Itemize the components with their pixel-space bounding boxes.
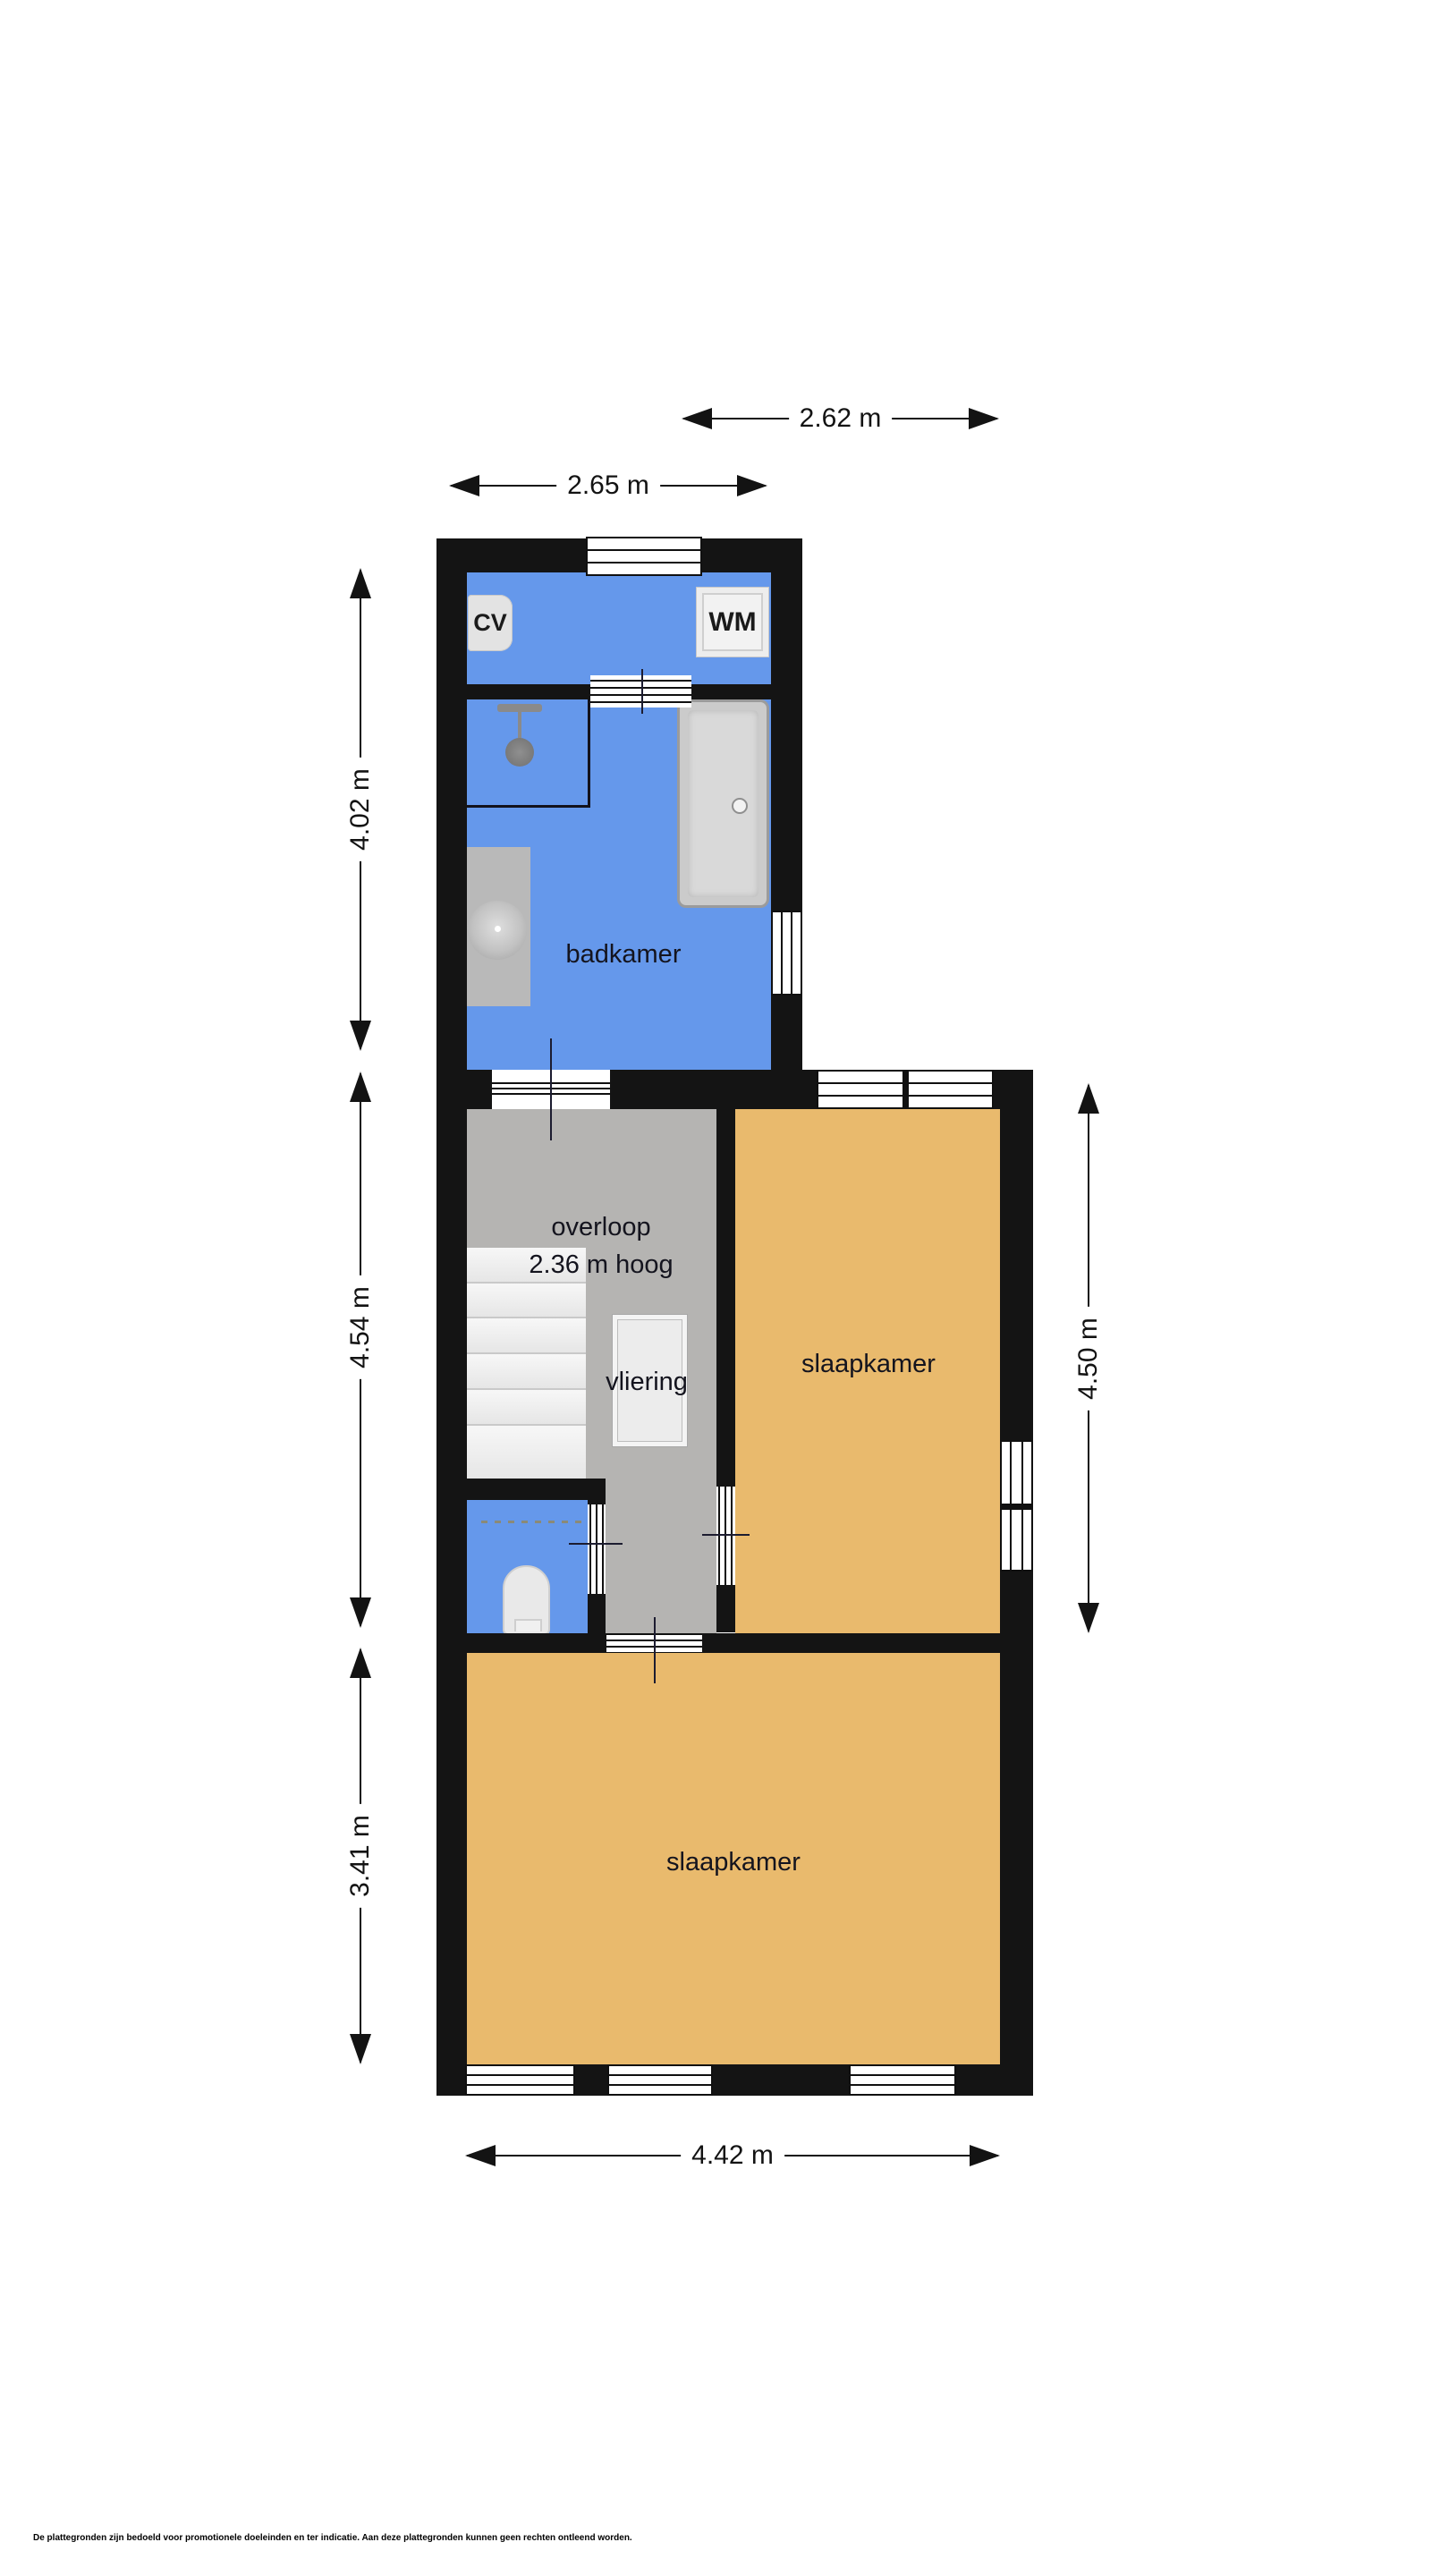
door	[716, 1487, 735, 1585]
window	[1000, 1440, 1033, 1572]
dimension-height-bedroom-lower: 3.41 m	[343, 1648, 378, 2064]
shower-screen-vertical	[588, 699, 590, 808]
window	[586, 537, 702, 576]
stair-tread	[467, 1284, 586, 1318]
stair-tread	[467, 1354, 586, 1390]
arrow-right-icon	[969, 408, 999, 429]
wall	[716, 1109, 735, 1487]
dimension-label: 4.42 m	[681, 2139, 784, 2173]
dimension-width-upper-left: 2.65 m	[449, 468, 767, 504]
overloop-name: overloop	[529, 1208, 673, 1246]
arrow-left-icon	[465, 2145, 496, 2166]
door-swing-line	[550, 1038, 552, 1140]
wall	[436, 1633, 606, 1653]
wall	[467, 684, 593, 699]
wall	[436, 1653, 467, 2096]
cv-label: CV	[473, 609, 507, 637]
room-label-slaapkamer-lower: slaapkamer	[666, 1843, 801, 1881]
arrow-right-icon	[737, 475, 767, 496]
wm-label: WM	[708, 607, 756, 638]
arrow-down-icon	[1078, 1603, 1099, 1633]
arrow-left-icon	[682, 408, 712, 429]
cv-boiler: CV	[468, 595, 513, 651]
disclaimer-text: De plattegronden zijn bedoeld voor promo…	[33, 2533, 632, 2543]
overloop-height-note: 2.36 m hoog	[529, 1246, 673, 1284]
room-label-vliering: vliering	[606, 1363, 688, 1401]
ceiling-slope-dashed-line	[481, 1521, 581, 1523]
door	[588, 1504, 606, 1594]
window-mullion	[1002, 1504, 1031, 1510]
wall	[467, 1479, 606, 1500]
room-label-badkamer: badkamer	[566, 936, 682, 973]
arrow-left-icon	[449, 475, 479, 496]
door-threshold	[718, 1487, 733, 1585]
door-swing-line	[569, 1543, 623, 1545]
stair-tread	[467, 1390, 586, 1426]
shower-head-icon	[505, 738, 534, 767]
wall	[702, 1633, 1033, 1653]
dimension-height-landing: 4.54 m	[343, 1072, 378, 1628]
window	[607, 2064, 713, 2096]
arrow-right-icon	[970, 2145, 1000, 2166]
dimension-height-bathroom: 4.02 m	[343, 568, 378, 1051]
bathtub-drain-icon	[732, 798, 748, 814]
door-swing-line	[654, 1617, 656, 1683]
wall	[1000, 1653, 1033, 2096]
dimension-label: 2.65 m	[556, 469, 660, 503]
wall	[436, 1109, 467, 1652]
window	[817, 1070, 994, 1109]
window-mullion	[902, 1072, 909, 1107]
room-label-slaapkamer-upper: slaapkamer	[801, 1345, 936, 1383]
wall	[691, 684, 771, 699]
shower-screen-horizontal	[467, 805, 590, 808]
door-swing-line	[641, 669, 643, 714]
dimension-label: 2.62 m	[789, 402, 893, 436]
dimension-width-lower: 4.42 m	[465, 2138, 1000, 2173]
dimension-height-bedroom-upper: 4.50 m	[1071, 1083, 1106, 1633]
arrow-up-icon	[350, 1648, 371, 1678]
arrow-up-icon	[350, 568, 371, 598]
window	[849, 2064, 956, 2096]
door-swing-line	[702, 1534, 750, 1536]
dimension-label: 3.41 m	[343, 1804, 377, 1908]
door-threshold	[589, 1504, 604, 1594]
bathtub-basin	[688, 710, 758, 897]
wall	[771, 538, 802, 1109]
sink-basin-icon	[468, 901, 527, 960]
bathtub	[677, 699, 769, 908]
window	[465, 2064, 575, 2096]
arrow-down-icon	[350, 2034, 371, 2064]
arrow-down-icon	[350, 1597, 371, 1628]
washing-machine: WM	[696, 587, 769, 657]
window	[771, 911, 802, 996]
wall	[436, 1070, 492, 1109]
dimension-width-upper-right: 2.62 m	[682, 401, 999, 436]
arrow-down-icon	[350, 1021, 371, 1051]
toilet-fixture	[503, 1565, 550, 1635]
arrow-up-icon	[350, 1072, 371, 1102]
stair-tread	[467, 1426, 586, 1479]
dimension-label: 4.50 m	[1072, 1307, 1106, 1411]
wall	[716, 1585, 735, 1632]
dimension-label: 4.02 m	[343, 758, 377, 861]
stair-tread	[467, 1318, 586, 1354]
room-label-overloop: overloop 2.36 m hoog	[529, 1208, 673, 1284]
arrow-up-icon	[1078, 1083, 1099, 1114]
dimension-label: 4.54 m	[343, 1275, 377, 1379]
floorplan-canvas: CV WM	[0, 0, 1449, 2576]
wall	[436, 538, 467, 1109]
